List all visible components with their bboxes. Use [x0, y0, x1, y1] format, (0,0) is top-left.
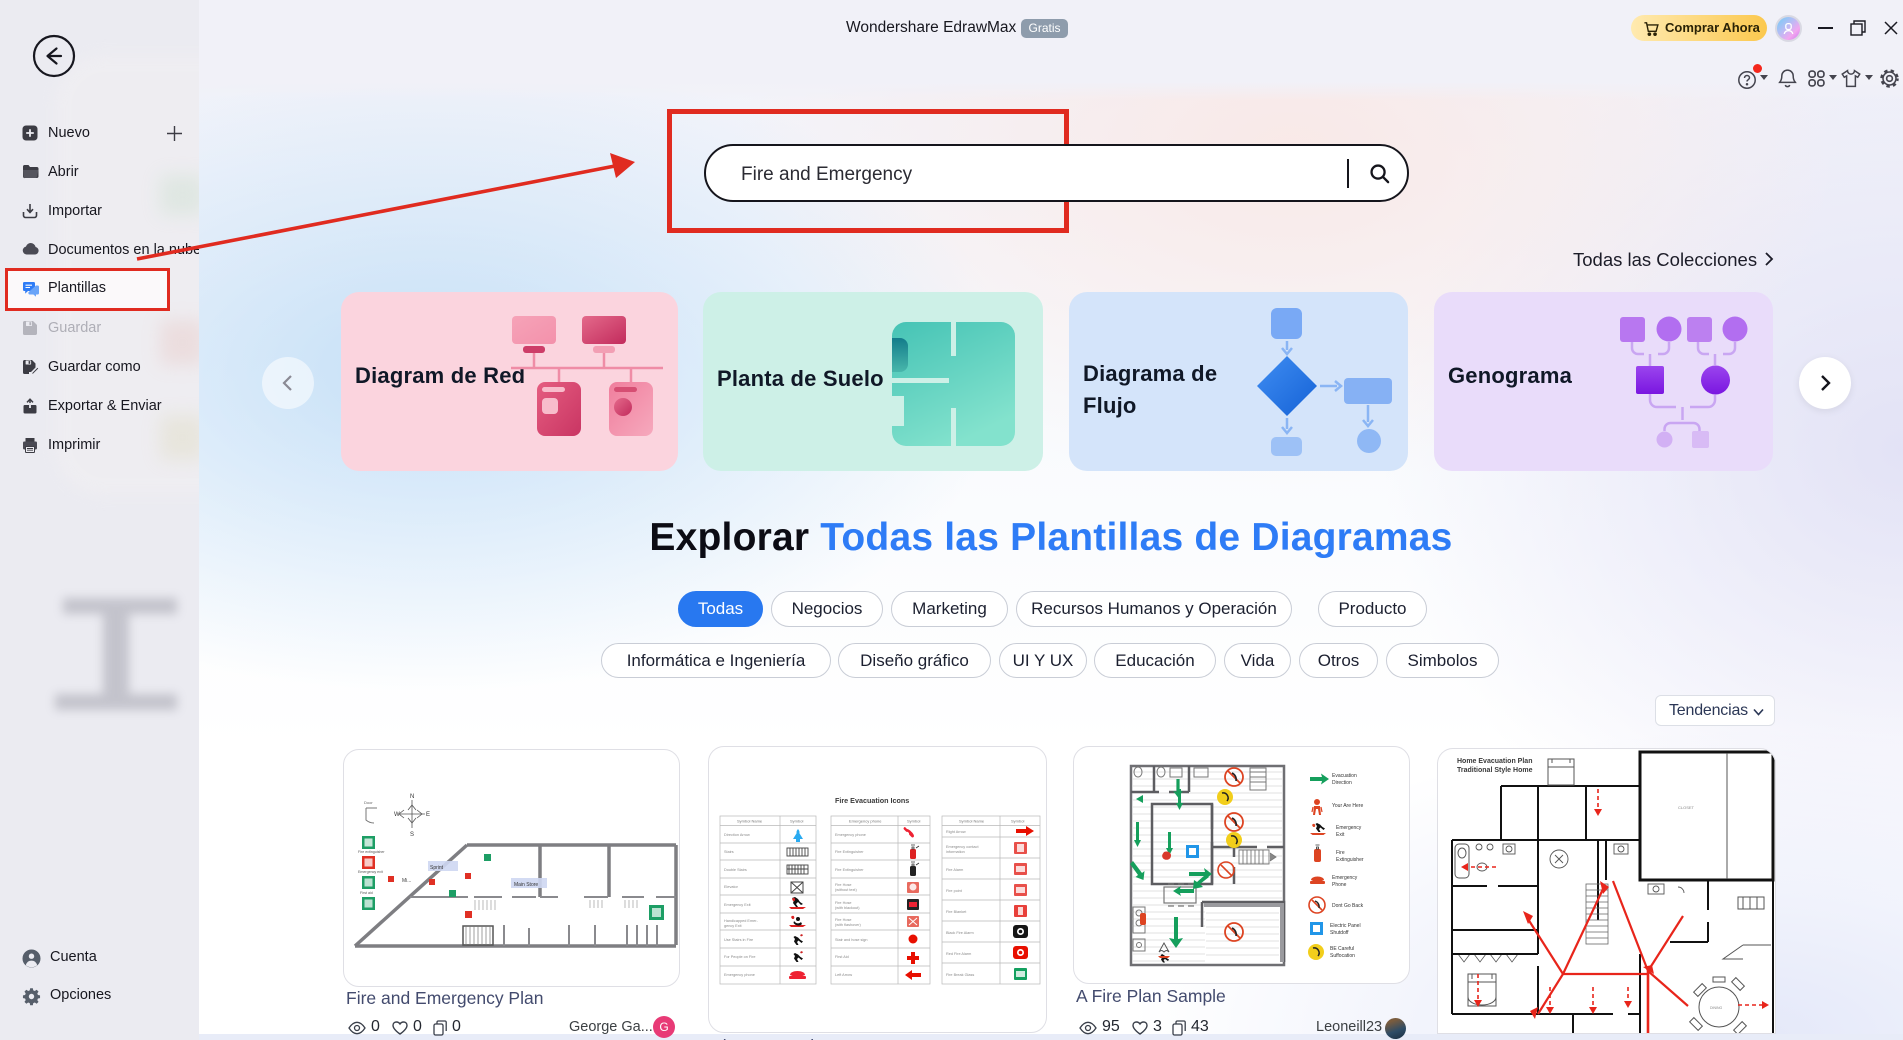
svg-text:Emergency phone: Emergency phone	[835, 833, 866, 837]
svg-text:Right Arrow: Right Arrow	[946, 830, 966, 834]
svg-text:Door: Door	[364, 800, 373, 805]
svg-text:Direction Arrow: Direction Arrow	[724, 833, 750, 837]
svg-text:Fire Extinguisher: Fire Extinguisher	[835, 868, 864, 872]
svg-text:S: S	[410, 832, 414, 838]
svg-text:Main Store: Main Store	[514, 882, 538, 888]
svg-text:First aid: First aid	[360, 891, 373, 895]
svg-text:Fire Alarm: Fire Alarm	[946, 868, 963, 872]
svg-text:E: E	[426, 812, 430, 818]
svg-text:Shutdoff: Shutdoff	[1330, 930, 1349, 936]
svg-text:Home Evacuation Plan: Home Evacuation Plan	[1457, 758, 1532, 765]
svg-text:Phone: Phone	[1332, 882, 1347, 888]
svg-text:Red Fire Alarm: Red Fire Alarm	[946, 952, 971, 956]
svg-text:Symbol: Symbol	[790, 819, 803, 824]
svg-text:Evacuation: Evacuation	[1332, 773, 1357, 779]
svg-text:For People on Fire: For People on Fire	[724, 955, 755, 959]
svg-text:Dont Go Back: Dont Go Back	[1332, 903, 1364, 909]
svg-text:Traditional Style Home: Traditional Style Home	[1457, 767, 1533, 774]
svg-text:Fire Hose: Fire Hose	[835, 918, 851, 922]
svg-text:Fire: Fire	[1336, 850, 1345, 856]
svg-text:Extinguisher: Extinguisher	[1336, 857, 1364, 863]
svg-text:Fire Break Glass: Fire Break Glass	[946, 973, 974, 977]
svg-text:gency Exit: gency Exit	[724, 924, 742, 928]
svg-text:BE Careful: BE Careful	[1330, 946, 1354, 952]
svg-text:Emergency: Emergency	[1336, 825, 1362, 831]
svg-text:(without text): (without text)	[835, 888, 857, 892]
svg-text:First Aid: First Aid	[835, 955, 849, 959]
svg-text:Symbol: Symbol	[907, 819, 920, 824]
svg-text:Fire Hose: Fire Hose	[835, 901, 851, 905]
svg-text:Emergency: Emergency	[1332, 875, 1358, 881]
svg-text:Black Fire Alarm: Black Fire Alarm	[946, 931, 974, 935]
svg-text:Stair and hose sign: Stair and hose sign	[835, 938, 868, 942]
svg-text:Fire extinguisher: Fire extinguisher	[358, 850, 385, 854]
svg-text:Fire Evacuation Icons: Fire Evacuation Icons	[835, 796, 909, 805]
svg-text:Emergency exit: Emergency exit	[358, 870, 383, 874]
svg-text:Mi...: Mi...	[402, 878, 411, 884]
svg-text:Symbol Name: Symbol Name	[959, 819, 985, 824]
svg-text:Fire Extinguisher: Fire Extinguisher	[835, 850, 864, 854]
svg-text:(with blackout): (with blackout)	[835, 906, 860, 910]
svg-text:CLOSET: CLOSET	[1678, 805, 1695, 810]
svg-text:W: W	[394, 812, 400, 818]
svg-text:Suffocation: Suffocation	[1330, 953, 1355, 959]
svg-text:Symbol: Symbol	[1011, 819, 1024, 824]
svg-text:Emergency contact: Emergency contact	[946, 845, 979, 849]
svg-text:DINING: DINING	[1710, 1006, 1723, 1010]
svg-text:Elevator: Elevator	[724, 885, 739, 889]
svg-text:Fire point: Fire point	[946, 889, 963, 893]
svg-text:Fire Hose: Fire Hose	[835, 883, 851, 887]
svg-text:Emergency phone: Emergency phone	[724, 973, 755, 977]
svg-text:Stairs: Stairs	[724, 850, 734, 854]
svg-text:Direction: Direction	[1332, 780, 1352, 786]
svg-text:Left Arrow: Left Arrow	[835, 973, 852, 977]
svg-text:(with flashover): (with flashover)	[835, 923, 861, 927]
svg-text:Symbol Name: Symbol Name	[737, 819, 763, 824]
svg-text:Use Stairs in Fire: Use Stairs in Fire	[724, 938, 753, 942]
svg-text:Sprint: Sprint	[430, 865, 444, 871]
svg-text:Emergency Exit: Emergency Exit	[724, 903, 752, 907]
svg-text:Emergency phone: Emergency phone	[849, 819, 882, 824]
svg-text:Exit: Exit	[1336, 832, 1345, 838]
svg-text:Double Stairs: Double Stairs	[724, 868, 747, 872]
svg-text:Electric Panel: Electric Panel	[1330, 923, 1361, 929]
svg-text:Your Are Here: Your Are Here	[1332, 803, 1363, 809]
svg-text:N: N	[410, 794, 414, 800]
svg-text:information: information	[946, 850, 965, 854]
svg-text:Fire Blanket: Fire Blanket	[946, 910, 967, 914]
svg-text:Handicapped Emer-: Handicapped Emer-	[724, 919, 759, 923]
